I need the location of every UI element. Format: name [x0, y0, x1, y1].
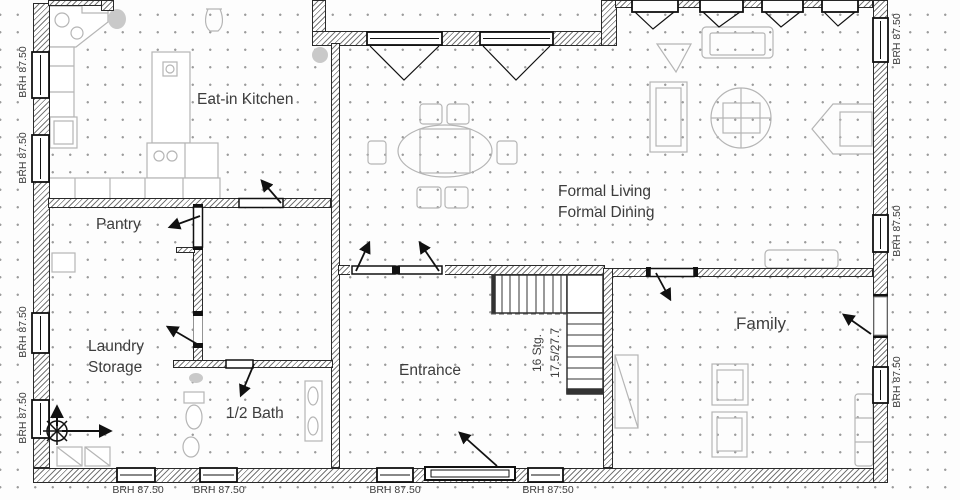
stairs-annotation-line1: 16 Stg.: [528, 313, 546, 393]
openings-layer: [0, 0, 960, 500]
armchair: [712, 412, 747, 457]
wall-right-exterior: [873, 0, 888, 483]
sill-label: BRH 87.50: [891, 350, 903, 414]
kitchen-island: [152, 52, 190, 143]
room-label-laundry: Laundry Storage: [88, 336, 144, 378]
wall-bottom-exterior: [33, 468, 888, 483]
corner-chair: [657, 44, 691, 72]
dining-table-set: [368, 104, 517, 208]
room-label-family: Family: [736, 314, 786, 334]
room-label-laundry-line2: Storage: [88, 357, 144, 378]
plant-icon: [312, 47, 328, 63]
cabinet: [650, 82, 687, 152]
sink-icon: [183, 437, 199, 457]
sill-label: BRH 87.50: [891, 7, 903, 71]
stairs-annotation-line2: 17.5/27.7: [546, 313, 564, 393]
stairs-annotation: 16 Stg. 17.5/27.7: [528, 313, 564, 393]
living-furniture: [312, 27, 877, 268]
room-label-kitchen: Eat-in Kitchen: [197, 91, 294, 109]
sill-label: BRH 87.50: [17, 386, 29, 450]
sofa: [855, 394, 873, 466]
wardrobe: [615, 355, 638, 428]
sill-label: BRH 87.50: [17, 300, 29, 364]
wall-laundry-stub: [176, 247, 195, 253]
dryer-icon: [85, 447, 110, 466]
room-label-pantry: Pantry: [96, 216, 141, 234]
round-table: [711, 88, 771, 148]
room-label-living-line1: Formal Living: [558, 181, 654, 202]
sill-label: BRH 87.50: [106, 484, 170, 496]
sofa: [702, 27, 773, 58]
windows: [32, 0, 888, 482]
sill-label: BRH 87.50: [17, 126, 29, 190]
wall-laundry-east: [193, 205, 203, 368]
bay-chair: [812, 104, 877, 154]
toilet-icon: [186, 405, 202, 429]
sill-label: BRH 87.50: [363, 484, 427, 496]
furniture-layer: [0, 0, 960, 500]
wall-stair-east: [603, 268, 613, 468]
wall-left-exterior: [33, 3, 50, 468]
wall-kitchen-bottom: [48, 198, 331, 208]
room-label-entrance: Entrance: [399, 362, 461, 380]
sill-label: BRH 87.50: [187, 484, 251, 496]
armchair: [712, 364, 748, 405]
wall-living-top: [312, 31, 603, 46]
decor-icon: [206, 9, 223, 31]
sill-label: BRH 87.50: [891, 199, 903, 263]
wall-interior-kitchen-entrance: [331, 43, 340, 468]
washer-icon: [57, 447, 82, 466]
wall-entrance-top: [338, 265, 605, 275]
wall-kitchen-top-stub: [101, 0, 114, 11]
sideboard: [765, 250, 838, 268]
sill-label: BRH 87.50: [17, 40, 29, 104]
wall-family-top: [607, 268, 873, 277]
room-label-living-line2: Formal Dining: [558, 202, 654, 223]
family-furniture: [615, 355, 873, 466]
wall-bay-top: [615, 0, 873, 8]
wall-bath-top: [173, 360, 333, 368]
room-label-bath: 1/2 Bath: [226, 405, 284, 423]
origin-axis-icon: [43, 407, 110, 445]
sill-label: BRH 87.50: [516, 484, 580, 496]
plant-icon: [108, 9, 126, 29]
floor-plan: Eat-in Kitchen Pantry Formal Living Form…: [0, 0, 960, 500]
room-label-living: Formal Living Formal Dining: [558, 181, 654, 223]
vanity: [305, 381, 322, 441]
room-label-laundry-line1: Laundry: [88, 336, 144, 357]
sink-icon: [154, 151, 164, 161]
